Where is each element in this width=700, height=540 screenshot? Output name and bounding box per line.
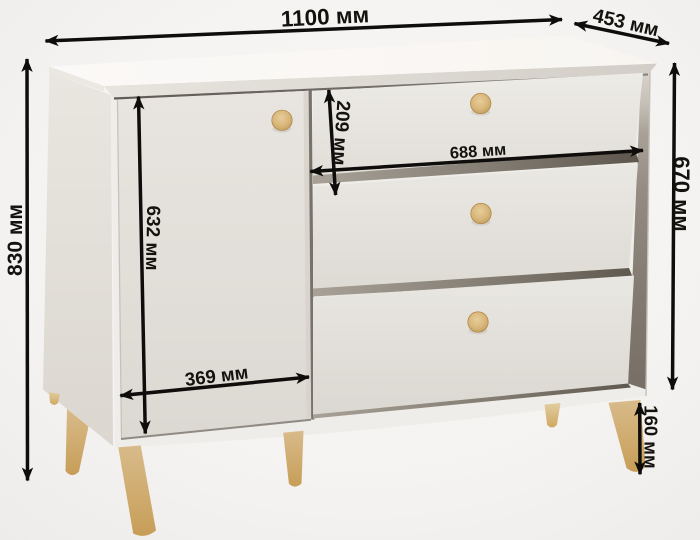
svg-text:160 мм: 160 мм (641, 405, 662, 468)
svg-text:632 мм: 632 мм (141, 205, 163, 271)
svg-text:670 мм: 670 мм (669, 156, 694, 231)
svg-text:209 мм: 209 мм (328, 100, 353, 166)
svg-text:1100 мм: 1100 мм (280, 2, 370, 32)
svg-text:830 мм: 830 мм (4, 204, 27, 276)
